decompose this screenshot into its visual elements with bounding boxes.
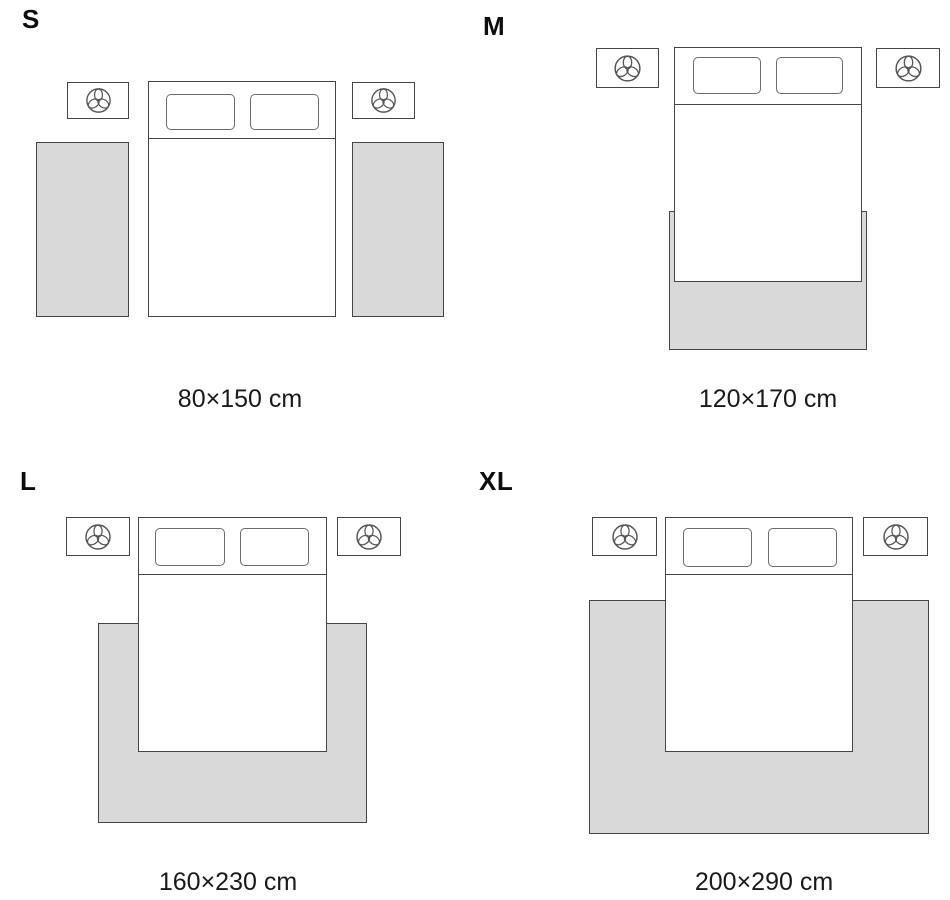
size-option-s: S — [0, 0, 475, 450]
bed — [148, 81, 336, 317]
pillow-left — [155, 528, 225, 566]
size-caption-l: 160×230 cm — [159, 870, 297, 895]
size-label-l: L — [20, 468, 36, 494]
bed — [665, 517, 853, 752]
pillow-left — [693, 57, 761, 94]
nightstand-right — [352, 82, 415, 119]
size-caption-xl: 200×290 cm — [695, 870, 833, 895]
size-option-m: M — [475, 0, 950, 450]
pillow-right — [240, 528, 309, 566]
rug-runner-left — [36, 142, 129, 317]
nightstand-right — [863, 517, 928, 556]
size-label-xl: XL — [479, 468, 513, 494]
pillow-right — [250, 94, 319, 130]
nightstand-left — [67, 82, 129, 119]
plant-icon — [83, 85, 114, 116]
bed — [138, 517, 327, 752]
nightstand-left — [592, 517, 657, 556]
rug-size-guide: S — [0, 0, 950, 900]
size-label-s: S — [22, 6, 40, 32]
nightstand-right — [876, 48, 940, 88]
nightstand-left — [596, 48, 659, 88]
pillow-left — [683, 528, 752, 567]
size-label-m: M — [483, 13, 505, 39]
pillow-left — [166, 94, 235, 130]
rug-runner-right — [352, 142, 444, 317]
size-caption-m: 120×170 cm — [699, 387, 837, 412]
size-option-l: L — [0, 450, 475, 900]
nightstand-right — [337, 517, 401, 556]
pillow-right — [776, 57, 843, 94]
plant-icon — [368, 85, 399, 116]
nightstand-left — [66, 517, 130, 556]
pillow-right — [768, 528, 837, 567]
size-caption-s: 80×150 cm — [178, 387, 302, 412]
plant-icon — [880, 521, 912, 553]
plant-icon — [892, 52, 925, 85]
plant-icon — [611, 52, 644, 85]
size-option-xl: XL — [475, 450, 950, 900]
plant-icon — [353, 521, 385, 553]
bed — [674, 47, 862, 282]
plant-icon — [609, 521, 641, 553]
plant-icon — [82, 521, 114, 553]
